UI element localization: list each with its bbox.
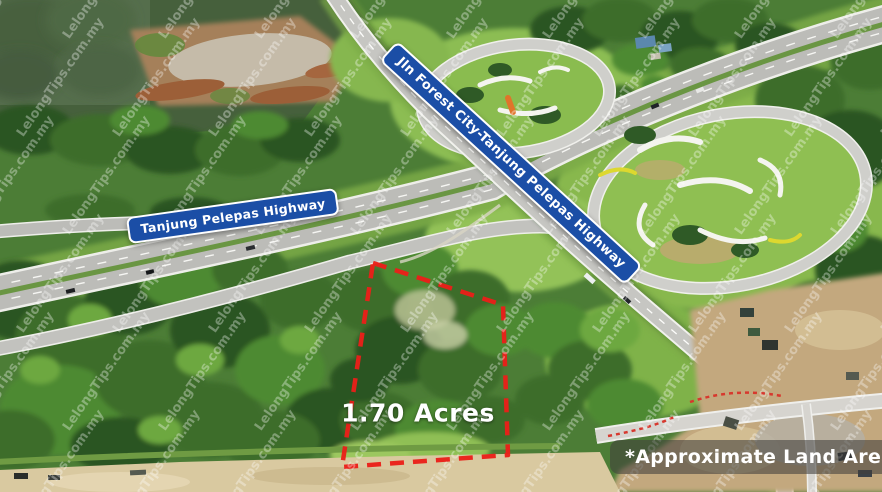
footnote-badge: *Approximate Land Area xyxy=(610,440,882,474)
land-area-label: 1.70 Acres xyxy=(341,399,495,428)
aerial-listing-image: LelongTips.com.myLelongTips.com.myLelong… xyxy=(0,0,882,492)
